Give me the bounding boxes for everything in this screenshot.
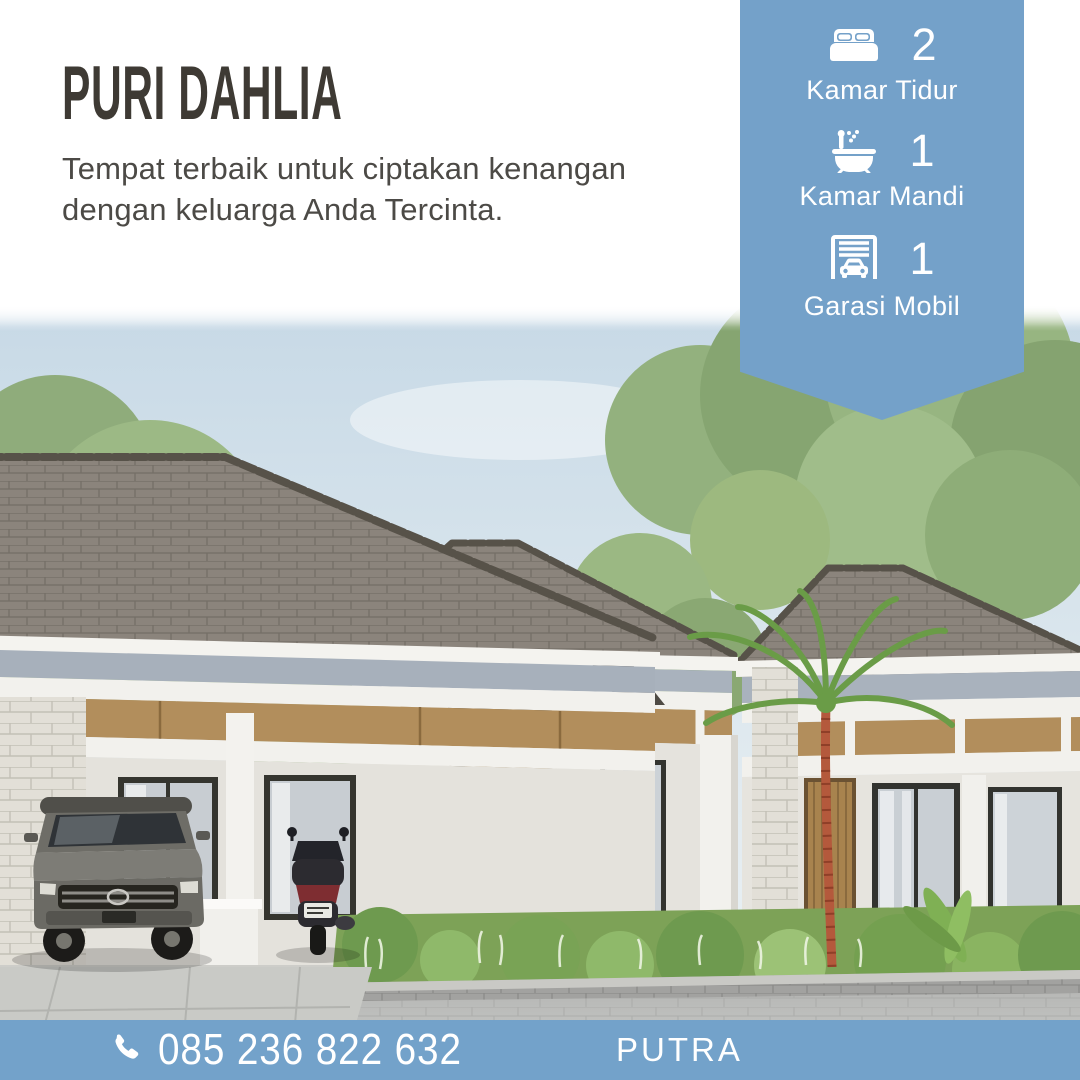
flyer: PURI DAHLIA Tempat terbaik untuk ciptaka…: [0, 0, 1080, 1080]
bathroom-label: Kamar Mandi: [800, 181, 965, 212]
bath-icon: [829, 127, 879, 173]
bed-icon: [827, 23, 881, 67]
phone-icon: [108, 1031, 142, 1070]
garage-label: Garasi Mobil: [804, 291, 960, 322]
phone-number: 085 236 822 632: [158, 1025, 462, 1075]
bedroom-count: 2: [911, 22, 936, 67]
header: PURI DAHLIA Tempat terbaik untuk ciptaka…: [0, 0, 740, 305]
bathroom-count: 1: [909, 128, 934, 173]
page-title: PURI DAHLIA: [62, 56, 342, 132]
phone-contact: 085 236 822 632: [108, 1020, 503, 1080]
feature-bathrooms: 1 Kamar Mandi: [800, 127, 965, 212]
garage-icon: [829, 233, 879, 283]
tagline: Tempat terbaik untuk ciptakan kenangan d…: [62, 148, 652, 230]
garage-count: 1: [909, 236, 934, 281]
feature-garage: 1 Garasi Mobil: [804, 233, 960, 322]
house-render: [0, 305, 1080, 1080]
bedroom-label: Kamar Tidur: [806, 75, 957, 106]
feature-bedrooms: 2 Kamar Tidur: [806, 22, 957, 106]
brand-name: PUTRA: [616, 1020, 743, 1080]
features-ribbon: 2 Kamar Tidur 1 K: [740, 0, 1024, 420]
footer-bar: 085 236 822 632 PUTRA: [0, 1020, 1080, 1080]
house-render-illustration: [0, 305, 1080, 1080]
